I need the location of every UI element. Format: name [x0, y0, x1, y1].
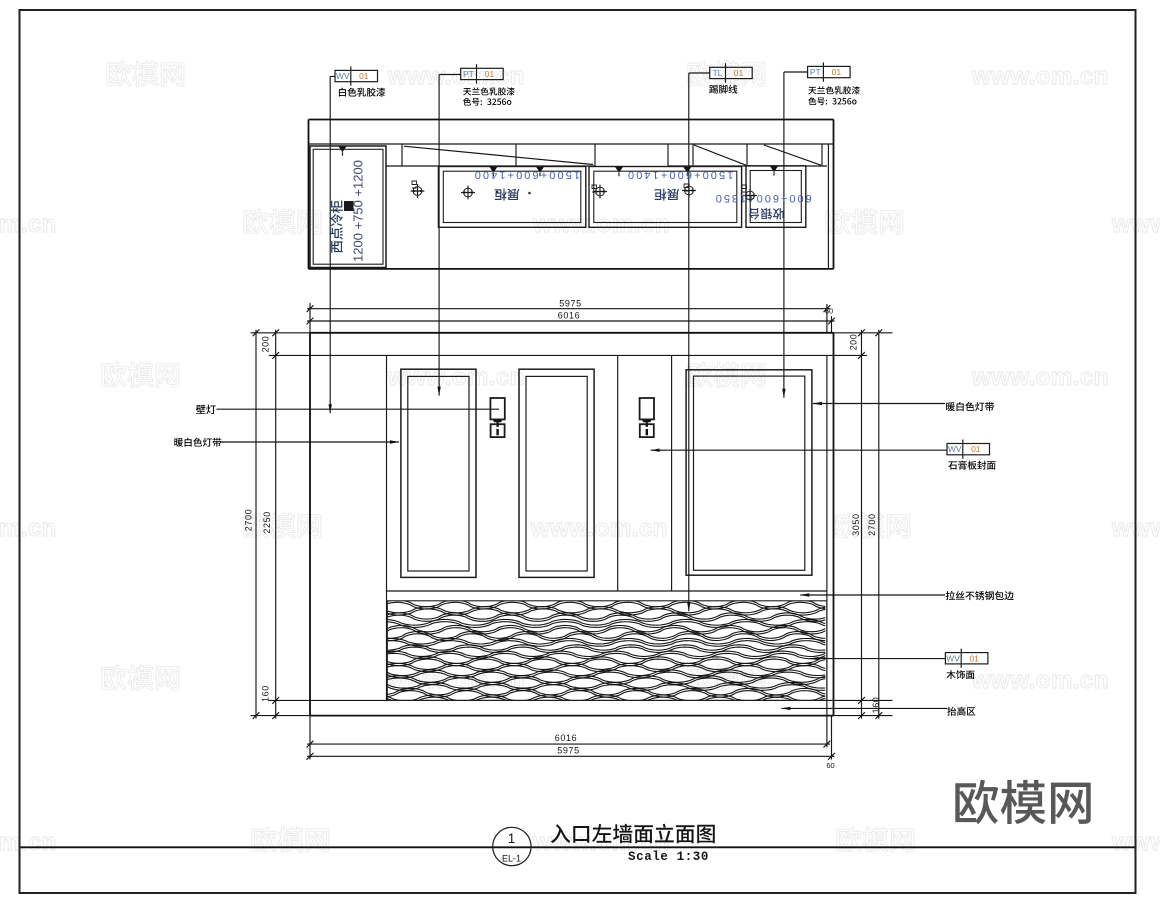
svg-text:5975: 5975 [559, 299, 581, 309]
svg-text:www.om.cn: www.om.cn [387, 63, 525, 90]
svg-text:www.om.cn: www.om.cn [0, 211, 57, 238]
svg-text:160: 160 [871, 697, 881, 714]
svg-text:Scale 1:30: Scale 1:30 [628, 850, 709, 864]
svg-text:1: 1 [508, 831, 516, 846]
svg-text:01: 01 [359, 71, 369, 81]
svg-text:200: 200 [261, 336, 271, 353]
svg-text:6016: 6016 [555, 733, 577, 743]
svg-text:www.om.cn: www.om.cn [0, 829, 57, 856]
svg-text:www.om.cn: www.om.cn [971, 63, 1109, 90]
svg-text:2700: 2700 [243, 509, 253, 531]
svg-text:60: 60 [825, 307, 833, 316]
svg-text:01: 01 [485, 69, 495, 79]
svg-text:60: 60 [826, 761, 834, 770]
svg-text:WV: WV [946, 653, 960, 663]
svg-text:01: 01 [832, 67, 842, 77]
svg-text:01: 01 [734, 68, 744, 78]
svg-text:www.om.cn: www.om.cn [532, 211, 670, 238]
svg-text:www.om.cn: www.om.cn [530, 515, 668, 542]
svg-text:WV: WV [336, 71, 350, 81]
svg-text:160: 160 [261, 685, 271, 702]
svg-text:EL-1: EL-1 [502, 854, 521, 864]
svg-text:TL: TL [712, 68, 722, 78]
svg-text:PT: PT [810, 67, 821, 77]
svg-text:01: 01 [971, 444, 981, 454]
svg-text:www.om.cn: www.om.cn [0, 515, 57, 542]
svg-text:www.om.cn: www.om.cn [971, 667, 1109, 694]
svg-text:1500+600+1400: 1500+600+1400 [473, 169, 580, 181]
svg-text:5975: 5975 [557, 745, 579, 755]
svg-text:600+600+1350: 600+600+1350 [714, 192, 812, 204]
svg-text:200: 200 [849, 334, 859, 351]
svg-text:01: 01 [969, 653, 979, 663]
svg-text:www.om.cn: www.om.cn [971, 364, 1109, 391]
svg-text:2700: 2700 [867, 513, 877, 535]
svg-text:1200 +750 +1200: 1200 +750 +1200 [351, 160, 366, 262]
svg-text:2250: 2250 [262, 511, 272, 533]
svg-text:3050: 3050 [851, 513, 861, 535]
svg-text:6016: 6016 [558, 310, 580, 320]
svg-text:PT: PT [463, 69, 474, 79]
svg-text:1500+600+1400: 1500+600+1400 [626, 169, 733, 181]
svg-text:WV: WV [948, 444, 962, 454]
